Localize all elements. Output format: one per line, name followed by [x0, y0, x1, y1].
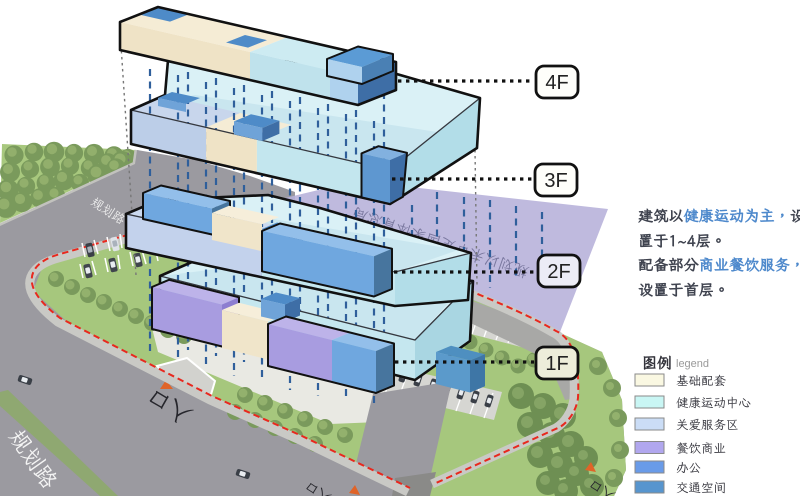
svg-text:3F: 3F [544, 170, 567, 192]
svg-text:餐饮商业: 餐饮商业 [676, 440, 726, 457]
svg-text:legend: legend [676, 358, 709, 370]
svg-text:基础配套: 基础配套 [676, 372, 727, 389]
svg-text:办公: 办公 [676, 459, 701, 476]
svg-text:健康运动中心: 健康运动中心 [676, 394, 751, 411]
svg-text:4F: 4F [545, 72, 568, 94]
svg-text:置于1~4层。: 置于1~4层。 [638, 231, 726, 251]
svg-text:交通空间: 交通空间 [676, 479, 726, 496]
svg-text:关爱服务区: 关爱服务区 [676, 416, 739, 433]
svg-text:图例: 图例 [642, 354, 672, 373]
svg-text:配备部分商业餐饮服务，: 配备部分商业餐饮服务， [638, 255, 800, 275]
svg-text:2F: 2F [547, 261, 570, 283]
svg-text:1F: 1F [545, 353, 568, 375]
svg-text:设置于首层。: 设置于首层。 [638, 280, 729, 300]
svg-text:建筑以健康运动为主，设: 建筑以健康运动为主，设 [638, 206, 800, 226]
